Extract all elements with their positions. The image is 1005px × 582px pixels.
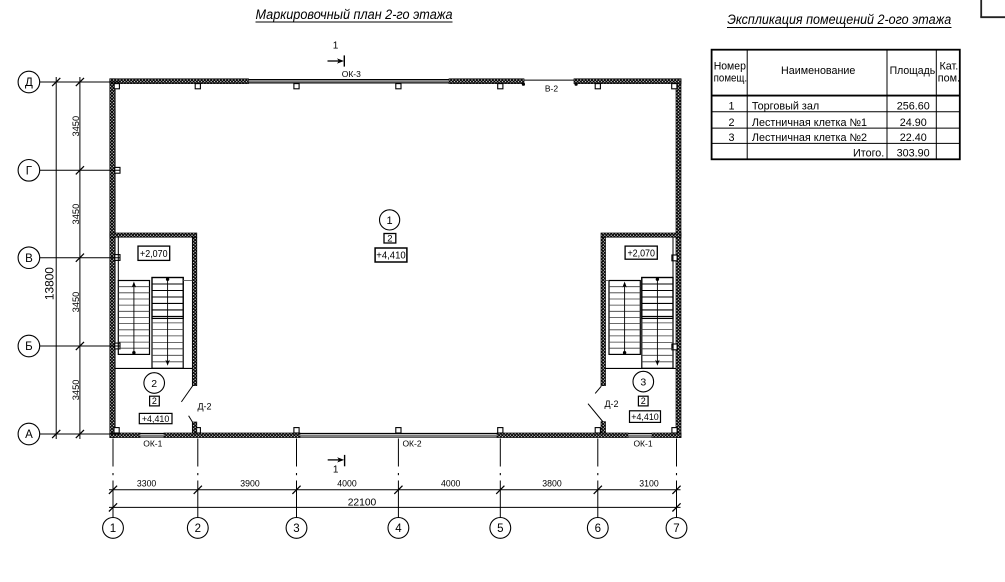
- svg-text:Площадь: Площадь: [890, 65, 936, 77]
- svg-text:303.90: 303.90: [897, 148, 930, 160]
- svg-text:22100: 22100: [348, 497, 377, 508]
- svg-text:2: 2: [195, 523, 201, 535]
- svg-text:2: 2: [641, 396, 646, 406]
- svg-text:13800: 13800: [43, 267, 57, 301]
- svg-text:ОК-3: ОК-3: [342, 69, 361, 79]
- svg-text:2: 2: [151, 378, 157, 390]
- svg-text:1: 1: [333, 465, 339, 476]
- svg-text:6: 6: [595, 523, 601, 535]
- svg-text:3800: 3800: [542, 479, 561, 490]
- svg-text:ОК-1: ОК-1: [143, 438, 162, 448]
- svg-text:1: 1: [728, 101, 734, 113]
- svg-text:1: 1: [387, 215, 393, 227]
- svg-text:7: 7: [673, 523, 679, 535]
- svg-text:3450: 3450: [71, 380, 82, 401]
- svg-text:Б: Б: [25, 341, 33, 353]
- svg-text:+2,070: +2,070: [627, 249, 655, 260]
- svg-text:Торговый зал: Торговый зал: [752, 101, 819, 113]
- svg-text:3: 3: [640, 376, 646, 388]
- svg-text:Д-2: Д-2: [197, 402, 211, 412]
- svg-text:3300: 3300: [137, 479, 156, 490]
- svg-text:Д: Д: [25, 77, 33, 89]
- svg-text:256.60: 256.60: [897, 101, 930, 113]
- svg-text:+4,410: +4,410: [142, 414, 170, 425]
- svg-text:+4,410: +4,410: [631, 412, 659, 423]
- svg-text:3450: 3450: [71, 116, 82, 137]
- svg-text:2: 2: [387, 233, 392, 244]
- svg-text:5: 5: [497, 523, 503, 535]
- svg-text:2: 2: [152, 396, 157, 406]
- svg-text:24.90: 24.90: [900, 117, 927, 129]
- svg-text:помещ.: помещ.: [714, 73, 748, 85]
- svg-text:+2,070: +2,070: [140, 249, 168, 260]
- svg-text:4: 4: [395, 523, 402, 535]
- svg-text:Лестничная клетка №2: Лестничная клетка №2: [752, 132, 867, 144]
- svg-text:ОК-1: ОК-1: [633, 438, 652, 448]
- svg-text:3: 3: [728, 132, 734, 144]
- svg-text:Д-2: Д-2: [604, 399, 618, 409]
- svg-text:4000: 4000: [441, 479, 460, 490]
- svg-text:Г: Г: [26, 165, 33, 177]
- svg-text:+4,410: +4,410: [376, 251, 406, 262]
- svg-text:Итого.: Итого.: [853, 148, 884, 160]
- svg-text:Наименование: Наименование: [781, 65, 855, 77]
- svg-text:2: 2: [728, 117, 734, 129]
- svg-text:А: А: [25, 429, 33, 441]
- svg-text:3: 3: [293, 523, 299, 535]
- svg-text:Лестничная клетка №1: Лестничная клетка №1: [752, 117, 867, 129]
- svg-text:Кат.: Кат.: [939, 60, 958, 72]
- svg-text:пом.: пом.: [938, 73, 960, 85]
- svg-text:Номер: Номер: [714, 60, 746, 72]
- svg-text:4000: 4000: [337, 479, 356, 490]
- svg-text:3450: 3450: [71, 292, 82, 313]
- svg-text:Маркировочный план 2-го этажа: Маркировочный план 2-го этажа: [256, 7, 453, 22]
- svg-text:3450: 3450: [71, 204, 82, 225]
- svg-text:В-2: В-2: [545, 84, 559, 94]
- svg-text:В: В: [25, 253, 33, 265]
- svg-text:22.40: 22.40: [900, 132, 927, 144]
- svg-text:Экспликация помещений 2-ого эт: Экспликация помещений 2-ого этажа: [727, 12, 951, 27]
- svg-text:1: 1: [110, 523, 116, 535]
- svg-text:3100: 3100: [639, 479, 658, 490]
- svg-text:3900: 3900: [240, 479, 259, 490]
- svg-text:ОК-2: ОК-2: [402, 438, 421, 448]
- svg-text:1: 1: [333, 41, 339, 52]
